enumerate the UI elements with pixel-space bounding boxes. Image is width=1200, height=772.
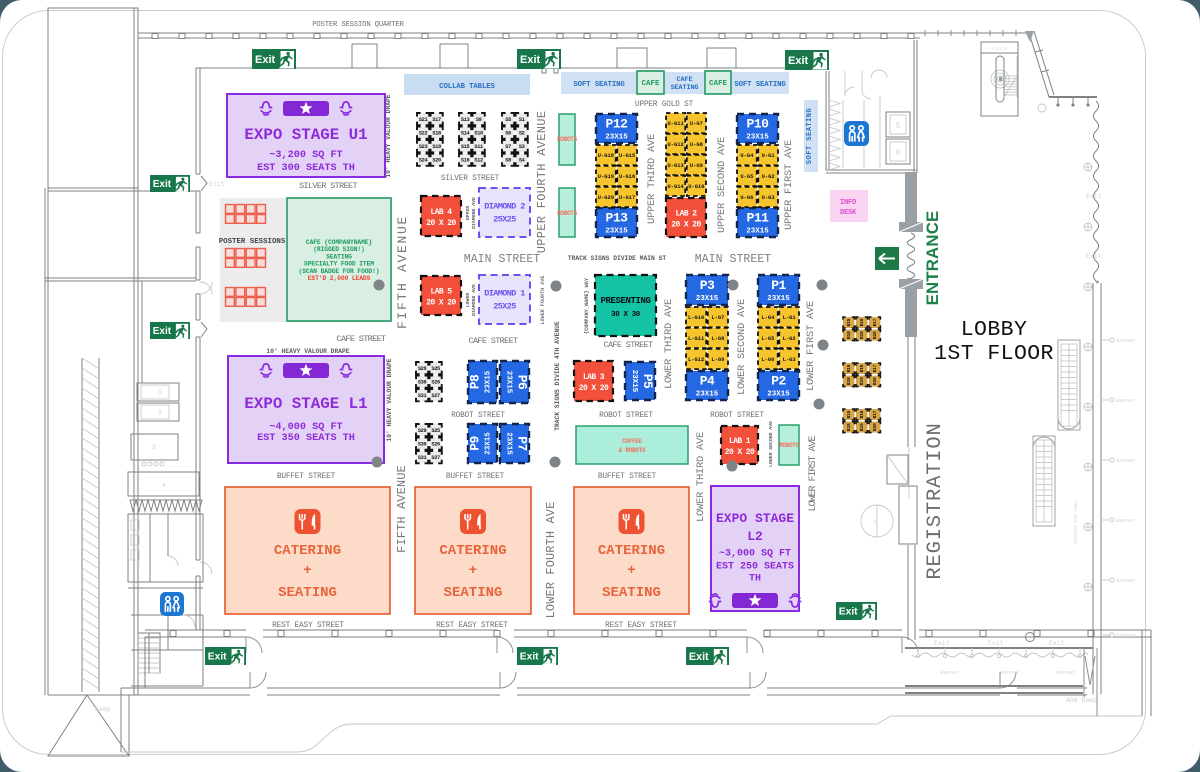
- svg-text:23X15: 23X15: [485, 432, 493, 455]
- svg-text:S7: S7: [505, 144, 511, 150]
- svg-text:LOBBY: LOBBY: [961, 318, 1028, 342]
- svg-text:U-G9: U-G9: [690, 163, 703, 169]
- svg-text:BUFFET STREET: BUFFET STREET: [277, 473, 336, 481]
- svg-text:SEATING: SEATING: [326, 253, 352, 260]
- svg-text:(SCAN BADGE FOR FOOD!): (SCAN BADGE FOR FOOD!): [299, 268, 380, 275]
- svg-text:L-G12: L-G12: [688, 357, 704, 363]
- svg-text:L-G3: L-G3: [783, 357, 796, 363]
- svg-text:~3,000 SQ FT: ~3,000 SQ FT: [719, 549, 791, 560]
- svg-text:L-G8: L-G8: [711, 336, 724, 342]
- svg-text:REST EASY STREET: REST EASY STREET: [436, 622, 508, 630]
- svg-text:COFFEE: COFFEE: [622, 438, 643, 445]
- svg-text:ENTRANCE: ENTRANCE: [923, 211, 942, 306]
- svg-text:L-G1: L-G1: [783, 315, 796, 321]
- svg-text:S13: S13: [461, 117, 470, 123]
- svg-text:23X15: 23X15: [505, 371, 513, 394]
- svg-text:S16: S16: [461, 158, 470, 164]
- svg-text:Exit: Exit: [209, 181, 225, 188]
- svg-text:B16: B16: [860, 410, 865, 418]
- svg-text:U-G18: U-G18: [598, 153, 614, 159]
- svg-text:Banner: Banner: [1116, 632, 1136, 639]
- svg-text:B18: B18: [847, 331, 852, 339]
- svg-text:SEATING: SEATING: [602, 585, 661, 601]
- svg-text:20 X 20: 20 X 20: [579, 384, 609, 393]
- svg-text:EST 350 SEATS TH: EST 350 SEATS TH: [257, 433, 355, 444]
- svg-text:DIAMOND AVE: DIAMOND AVE: [471, 284, 477, 316]
- svg-text:3: 3: [152, 444, 156, 451]
- svg-text:P1: P1: [771, 278, 786, 293]
- svg-text:DIAMOND AVE: DIAMOND AVE: [471, 197, 477, 229]
- svg-text:CAFE STREET: CAFE STREET: [337, 334, 387, 344]
- svg-text:23X15: 23X15: [630, 370, 638, 393]
- svg-text:+: +: [303, 563, 311, 579]
- svg-text:S3: S3: [519, 144, 525, 150]
- svg-text:23X15: 23X15: [746, 228, 769, 236]
- svg-text:Banner: Banner: [1116, 457, 1136, 464]
- svg-text:& ROBOTS: & ROBOTS: [619, 447, 646, 454]
- svg-text:LOWER FOURTH AVE: LOWER FOURTH AVE: [544, 502, 558, 619]
- svg-text:ROBOTS: ROBOTS: [557, 136, 578, 143]
- svg-text:SILVER STREET: SILVER STREET: [299, 181, 357, 191]
- svg-text:LAB 1: LAB 1: [729, 437, 751, 446]
- svg-text:L-G9: L-G9: [711, 357, 724, 363]
- svg-text:U-G8: U-G8: [690, 142, 703, 148]
- svg-text:B17: B17: [873, 364, 878, 372]
- svg-text:U-G16: U-G16: [619, 174, 635, 180]
- svg-text:P8: P8: [468, 374, 483, 389]
- svg-text:S22: S22: [419, 131, 428, 137]
- svg-text:S20: S20: [432, 158, 441, 164]
- svg-text:EST 250 SEATS: EST 250 SEATS: [716, 562, 794, 573]
- svg-text:U-G1: U-G1: [762, 153, 775, 159]
- svg-text:P7: P7: [515, 436, 530, 451]
- svg-text:CAFE STREET: CAFE STREET: [604, 340, 654, 350]
- svg-text:S17: S17: [432, 117, 441, 123]
- svg-text:CATERING: CATERING: [274, 543, 341, 559]
- svg-text:Exit: Exit: [520, 652, 539, 663]
- svg-text:B20: B20: [873, 331, 878, 339]
- svg-text:P9: P9: [468, 436, 483, 451]
- svg-text:S21: S21: [419, 117, 428, 123]
- svg-text:POSTER SESSIONS: POSTER SESSIONS: [219, 238, 286, 246]
- svg-text:INFO: INFO: [840, 199, 856, 207]
- svg-text:LOWER FOURTH AVE: LOWER FOURTH AVE: [540, 276, 546, 325]
- svg-text:23X15: 23X15: [767, 391, 790, 399]
- svg-text:U-G12: U-G12: [668, 142, 684, 148]
- svg-text:U-G13: U-G13: [668, 163, 684, 169]
- svg-text:23X15: 23X15: [696, 391, 719, 399]
- svg-text:10' HEAVY VALOUR DRAPE: 10' HEAVY VALOUR DRAPE: [386, 358, 393, 441]
- svg-text:REGISTRATION: REGISTRATION: [924, 422, 947, 579]
- svg-text:B18: B18: [847, 423, 852, 431]
- svg-text:SEATING: SEATING: [278, 585, 337, 601]
- svg-text:LAB 3: LAB 3: [583, 373, 605, 382]
- svg-text:Banner: Banner: [1056, 669, 1076, 676]
- svg-text:U-G11: U-G11: [668, 121, 684, 127]
- svg-text:S29: S29: [418, 366, 427, 372]
- svg-text:1: 1: [158, 389, 162, 396]
- svg-text:P13: P13: [606, 211, 629, 226]
- svg-text:23X15: 23X15: [605, 228, 628, 236]
- svg-text:LAB 2: LAB 2: [675, 210, 697, 219]
- svg-text:Exit: Exit: [788, 55, 809, 67]
- svg-text:10' HEAVY VALOUR DRAPE: 10' HEAVY VALOUR DRAPE: [266, 348, 349, 355]
- svg-text:UPPER: UPPER: [465, 206, 471, 221]
- svg-text:LOWER: LOWER: [465, 293, 471, 308]
- svg-text:SPECIALTY FOOD ITEM: SPECIALTY FOOD ITEM: [304, 261, 374, 268]
- svg-text:LAB 4: LAB 4: [430, 208, 452, 217]
- svg-text:TRACK SIGNS DIVIDE 4TH AVENUE: TRACK SIGNS DIVIDE 4TH AVENUE: [554, 321, 561, 431]
- svg-text:Banner: Banner: [1000, 669, 1020, 676]
- svg-text:B19: B19: [860, 331, 865, 339]
- svg-text:~3,200 SQ FT: ~3,200 SQ FT: [269, 150, 342, 161]
- svg-text:SEATING: SEATING: [444, 585, 503, 601]
- svg-text:Exit: Exit: [1049, 640, 1065, 647]
- svg-text:Exit: Exit: [208, 652, 227, 663]
- svg-text:S30: S30: [418, 380, 427, 386]
- svg-text:S11: S11: [474, 144, 483, 150]
- svg-text:~4,000 SQ FT: ~4,000 SQ FT: [269, 422, 342, 433]
- svg-text:Banner: Banner: [1116, 577, 1136, 584]
- svg-text:POSTER SESSION QUARTER: POSTER SESSION QUARTER: [312, 21, 404, 29]
- svg-text:+: +: [469, 563, 477, 579]
- svg-text:S29: S29: [418, 428, 427, 434]
- svg-text:MAIN STREET: MAIN STREET: [464, 253, 541, 266]
- svg-text:TRACK SIGNS DIVIDE MAIN ST: TRACK SIGNS DIVIDE MAIN ST: [568, 255, 666, 262]
- svg-text:SEATING: SEATING: [671, 84, 699, 92]
- svg-text:SILVER STREET: SILVER STREET: [441, 175, 500, 183]
- svg-text:EXPO STAGE: EXPO STAGE: [716, 511, 794, 526]
- svg-text:UPPER GOLD ST: UPPER GOLD ST: [635, 101, 694, 109]
- svg-text:stairs: stairs: [991, 46, 1008, 52]
- svg-text:23X15: 23X15: [505, 432, 513, 455]
- svg-text:1ST FLOOR: 1ST FLOOR: [934, 342, 1054, 366]
- svg-text:LOWER FIRST AVE: LOWER FIRST AVE: [805, 301, 817, 391]
- svg-text:LOWER THIRD AVE: LOWER THIRD AVE: [663, 299, 675, 389]
- svg-text:4: 4: [162, 482, 166, 489]
- svg-text:S25: S25: [431, 428, 440, 434]
- svg-text:MOSCONE FAB AREA: MOSCONE FAB AREA: [1073, 500, 1079, 544]
- svg-text:U-G2: U-G2: [762, 174, 775, 180]
- svg-text:S24: S24: [419, 158, 429, 164]
- svg-text:8: 8: [874, 519, 878, 526]
- svg-text:ROBOTS: ROBOTS: [779, 442, 800, 449]
- svg-text:MAIN STREET: MAIN STREET: [695, 253, 772, 266]
- svg-text:Exit: Exit: [520, 54, 541, 66]
- svg-text:UPPER SECOND AVE: UPPER SECOND AVE: [716, 137, 728, 233]
- svg-text:Exit: Exit: [1086, 193, 1102, 200]
- svg-text:+: +: [627, 563, 635, 579]
- svg-text:FIFTH AVENUE: FIFTH AVENUE: [395, 465, 409, 553]
- svg-text:23X15: 23X15: [767, 295, 790, 303]
- svg-text:PRESENTING: PRESENTING: [600, 296, 650, 306]
- svg-text:UPPER FOURTH AVENUE: UPPER FOURTH AVENUE: [535, 111, 549, 254]
- svg-text:23X15: 23X15: [605, 134, 628, 142]
- svg-text:P10: P10: [747, 117, 770, 132]
- svg-text:Exit: Exit: [988, 640, 1004, 647]
- svg-text:20 X 20: 20 X 20: [671, 221, 701, 230]
- svg-text:U-G3: U-G3: [762, 195, 775, 201]
- svg-text:23X15: 23X15: [485, 370, 493, 393]
- svg-text:25X25: 25X25: [493, 215, 516, 225]
- svg-text:DIAMOND 2: DIAMOND 2: [484, 202, 525, 212]
- svg-text:CATERING: CATERING: [598, 543, 665, 559]
- svg-text:30 X 30: 30 X 30: [611, 311, 641, 319]
- svg-text:L-G7: L-G7: [711, 315, 724, 321]
- svg-text:S30: S30: [418, 442, 427, 448]
- svg-text:B19: B19: [860, 377, 865, 385]
- svg-text:BUFFET STREET: BUFFET STREET: [598, 473, 657, 481]
- svg-text:ROBOT STREET: ROBOT STREET: [599, 412, 653, 420]
- svg-text:U-G17: U-G17: [619, 195, 635, 201]
- svg-text:LOWER SECOND AVE: LOWER SECOND AVE: [768, 421, 774, 467]
- svg-text:EXPO STAGE L1: EXPO STAGE L1: [244, 395, 367, 413]
- svg-text:Ramp: Ramp: [95, 706, 111, 713]
- svg-text:U-G4: U-G4: [740, 153, 754, 159]
- svg-text:CAFE STREET: CAFE STREET: [469, 336, 519, 346]
- svg-text:(RIGGED SIGN!): (RIGGED SIGN!): [313, 246, 365, 253]
- svg-text:LAB 5: LAB 5: [430, 288, 452, 297]
- svg-text:Exit: Exit: [934, 640, 950, 647]
- svg-text:B18: B18: [847, 377, 852, 385]
- svg-text:Banner: Banner: [1116, 397, 1136, 404]
- svg-text:L-G11: L-G11: [688, 336, 704, 342]
- svg-text:CATERING: CATERING: [439, 543, 506, 559]
- svg-text:20 X 20: 20 X 20: [725, 448, 755, 457]
- svg-text:20 X 20: 20 X 20: [426, 299, 456, 308]
- svg-text:U-G14: U-G14: [668, 184, 685, 190]
- svg-text:B17: B17: [873, 410, 878, 418]
- svg-text:P4: P4: [700, 374, 715, 389]
- svg-text:S8: S8: [505, 158, 511, 164]
- svg-text:S19: S19: [432, 144, 441, 150]
- svg-text:LOWER THIRD AVE: LOWER THIRD AVE: [695, 432, 707, 522]
- svg-text:SOFT SEATING: SOFT SEATING: [573, 81, 625, 89]
- svg-text:U-G15: U-G15: [619, 153, 635, 159]
- svg-text:CAFE: CAFE: [709, 80, 728, 88]
- svg-text:REST EASY STREET: REST EASY STREET: [272, 622, 344, 630]
- svg-text:CAFE {COMPANYNAME}: CAFE {COMPANYNAME}: [306, 239, 373, 246]
- svg-text:S26: S26: [431, 442, 440, 448]
- svg-text:ROBOT STREET: ROBOT STREET: [451, 412, 505, 420]
- svg-text:L2: L2: [747, 529, 763, 544]
- svg-text:B15: B15: [847, 318, 852, 326]
- svg-text:EXPO STAGE U1: EXPO STAGE U1: [244, 126, 367, 144]
- svg-text:CAFE: CAFE: [677, 76, 693, 84]
- svg-text:S1: S1: [519, 117, 525, 123]
- svg-text:S14: S14: [461, 131, 471, 137]
- svg-text:B17: B17: [873, 318, 878, 326]
- svg-text:Exit: Exit: [255, 54, 276, 66]
- svg-text:S12: S12: [474, 158, 483, 164]
- svg-text:Exit: Exit: [153, 326, 172, 337]
- svg-text:5: 5: [896, 122, 901, 131]
- svg-text:B20: B20: [873, 423, 878, 431]
- svg-text:P12: P12: [606, 117, 629, 132]
- svg-text:S5: S5: [505, 117, 511, 123]
- svg-text:S31: S31: [418, 393, 427, 399]
- svg-text:S27: S27: [431, 393, 440, 399]
- svg-text:Banner: Banner: [1116, 517, 1136, 524]
- svg-text:23X15: 23X15: [696, 295, 719, 303]
- svg-text:U-G10: U-G10: [688, 184, 704, 190]
- svg-text:S26: S26: [431, 380, 440, 386]
- svg-text:Exit: Exit: [839, 607, 858, 618]
- svg-text:U-G7: U-G7: [690, 121, 703, 127]
- svg-text:L-G2: L-G2: [783, 336, 796, 342]
- svg-text:B15: B15: [847, 364, 852, 372]
- svg-text:P11: P11: [747, 211, 770, 226]
- svg-text:EST'D 2,000 LEADS: EST'D 2,000 LEADS: [308, 275, 371, 282]
- svg-text:20 X 20: 20 X 20: [426, 219, 456, 228]
- svg-text:10' HEAVY VALOUR DRAPE: 10' HEAVY VALOUR DRAPE: [385, 94, 392, 177]
- svg-text:B20: B20: [873, 377, 878, 385]
- svg-text:ROBOT STREET: ROBOT STREET: [710, 412, 764, 420]
- svg-text:{COMPANY_NAME} WAY: {COMPANY_NAME} WAY: [584, 277, 590, 334]
- svg-text:REST EASY STREET: REST EASY STREET: [605, 622, 677, 630]
- svg-text:DESK: DESK: [840, 209, 857, 217]
- svg-text:L-G6: L-G6: [761, 357, 774, 363]
- svg-text:UPPER THIRD AVE: UPPER THIRD AVE: [646, 134, 658, 224]
- svg-text:S2: S2: [519, 131, 525, 137]
- svg-text:L-G4: L-G4: [761, 315, 775, 321]
- svg-text:Banner: Banner: [1116, 337, 1136, 344]
- svg-text:U-G5: U-G5: [740, 174, 753, 180]
- svg-text:2: 2: [158, 409, 162, 416]
- svg-text:LOWER SECOND AVE: LOWER SECOND AVE: [736, 299, 748, 395]
- svg-text:ROBOTS: ROBOTS: [557, 210, 578, 217]
- svg-text:FIFTH AVENUE: FIFTH AVENUE: [395, 215, 410, 329]
- svg-text:L-G10: L-G10: [688, 315, 704, 321]
- svg-text:L-G5: L-G5: [761, 336, 774, 342]
- svg-text:B15: B15: [847, 410, 852, 418]
- svg-text:SOFT SEATING: SOFT SEATING: [806, 108, 814, 164]
- svg-text:P6: P6: [515, 375, 530, 390]
- svg-text:Exit: Exit: [1086, 253, 1102, 260]
- svg-text:U-G6: U-G6: [740, 195, 753, 201]
- svg-text:Banner: Banner: [940, 669, 960, 676]
- svg-text:S10: S10: [474, 131, 483, 137]
- svg-text:EST 300 SEATS TH: EST 300 SEATS TH: [257, 163, 355, 174]
- svg-text:S25: S25: [431, 366, 440, 372]
- svg-text:S27: S27: [431, 455, 440, 461]
- svg-text:P3: P3: [700, 278, 715, 293]
- svg-text:B19: B19: [860, 423, 865, 431]
- svg-text:P2: P2: [771, 374, 786, 389]
- svg-text:UPPER FIRST AVE: UPPER FIRST AVE: [783, 140, 795, 230]
- svg-text:S9: S9: [476, 117, 482, 123]
- svg-text:Exit: Exit: [689, 651, 709, 663]
- svg-text:TH: TH: [749, 574, 761, 585]
- svg-text:S15: S15: [461, 144, 470, 150]
- svg-text:B16: B16: [860, 364, 865, 372]
- svg-text:LOWER FIRST AVE: LOWER FIRST AVE: [808, 435, 819, 511]
- svg-text:B16: B16: [860, 318, 865, 326]
- svg-text:23X15: 23X15: [746, 134, 769, 142]
- svg-text:CAFE: CAFE: [641, 80, 660, 88]
- svg-text:S23: S23: [419, 144, 428, 150]
- svg-text:S6: S6: [505, 131, 511, 137]
- svg-text:P5: P5: [640, 374, 655, 389]
- svg-text:ADA Ramp: ADA Ramp: [1066, 697, 1097, 704]
- svg-text:6: 6: [896, 149, 901, 158]
- svg-text:DIAMOND 1: DIAMOND 1: [484, 289, 525, 299]
- svg-text:25X25: 25X25: [493, 302, 516, 312]
- svg-text:S18: S18: [432, 131, 441, 137]
- svg-text:SOFT SEATING: SOFT SEATING: [734, 81, 786, 89]
- svg-text:U-G19: U-G19: [598, 174, 614, 180]
- svg-text:U-G20: U-G20: [598, 195, 614, 201]
- svg-text:S31: S31: [418, 455, 427, 461]
- svg-text:Exit: Exit: [153, 179, 172, 190]
- svg-text:COLLAB TABLES: COLLAB TABLES: [439, 83, 495, 91]
- svg-text:BUFFET STREET: BUFFET STREET: [446, 473, 505, 481]
